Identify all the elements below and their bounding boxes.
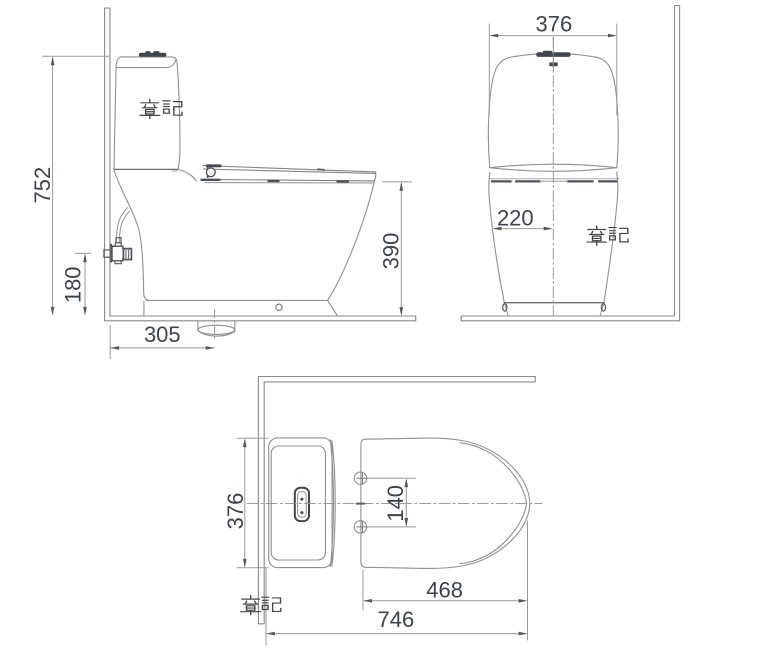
svg-text:305: 305 [144, 322, 181, 347]
svg-text:180: 180 [61, 266, 86, 303]
svg-text:752: 752 [30, 167, 55, 204]
svg-text:376: 376 [223, 493, 248, 530]
svg-text:220: 220 [497, 205, 534, 230]
svg-text:390: 390 [378, 233, 403, 270]
svg-text:376: 376 [536, 12, 573, 37]
svg-text:468: 468 [426, 577, 463, 602]
svg-text:140: 140 [383, 485, 408, 522]
svg-text:746: 746 [378, 607, 415, 632]
